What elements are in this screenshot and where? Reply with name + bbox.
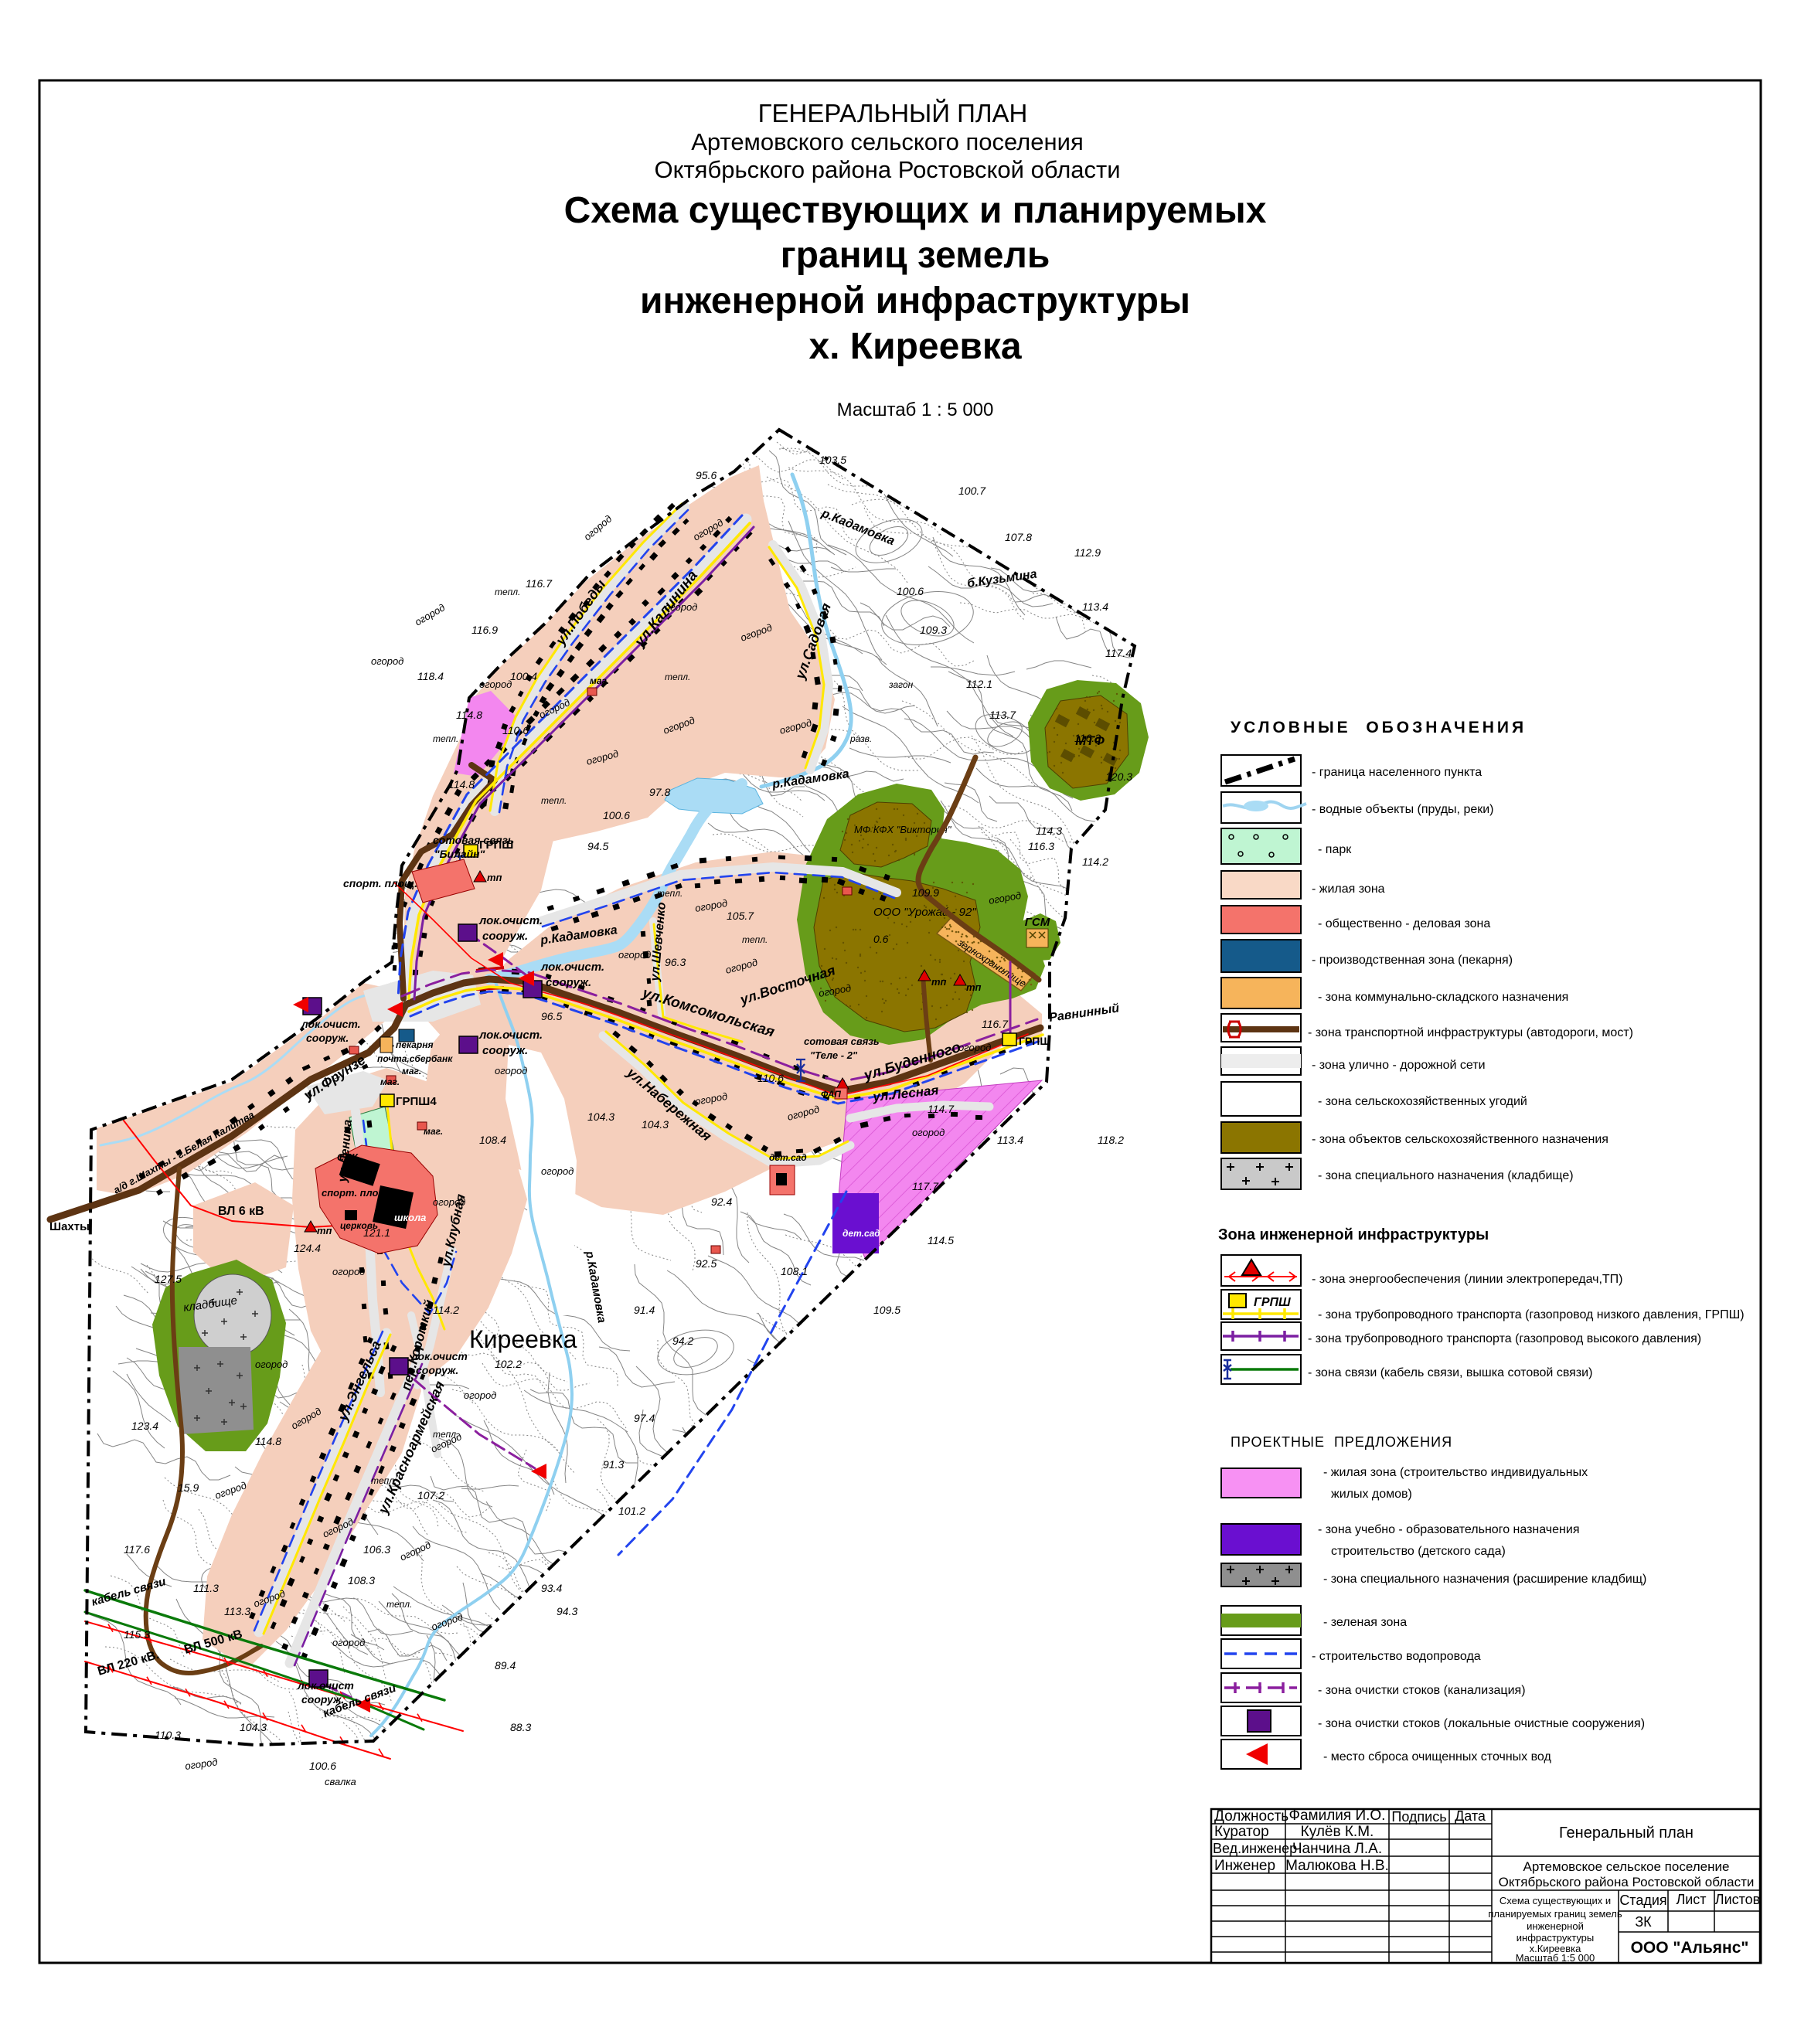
svg-text:- место сброса очищенных сточ: - место сброса очищенных сточных вод bbox=[1323, 1750, 1551, 1763]
svg-text:Схема существующих и планируем: Схема существующих и планируемых bbox=[564, 190, 1267, 231]
svg-text:Кулёв К.М.: Кулёв К.М. bbox=[1301, 1824, 1374, 1840]
svg-text:104.3: 104.3 bbox=[587, 1110, 614, 1123]
svg-text:огород: огород bbox=[912, 1127, 945, 1138]
svg-text:- зона очистки стоков (локальн: - зона очистки стоков (локальные очистны… bbox=[1318, 1717, 1645, 1730]
svg-text:105.7: 105.7 bbox=[727, 910, 754, 922]
svg-text:Куратор: Куратор bbox=[1214, 1824, 1269, 1840]
svg-text:100.6: 100.6 bbox=[309, 1760, 336, 1772]
svg-text:инфраструктуры: инфраструктуры bbox=[1517, 1932, 1595, 1944]
svg-text:91.4: 91.4 bbox=[634, 1304, 655, 1316]
svg-text:114.2: 114.2 bbox=[1082, 855, 1108, 868]
svg-text:ГРПШ: ГРПШ bbox=[1019, 1035, 1050, 1047]
svg-text:- строительство водопровода: - строительство водопровода bbox=[1312, 1650, 1481, 1663]
svg-text:Артемовское сельское поселение: Артемовское сельское поселение bbox=[1523, 1859, 1730, 1874]
svg-text:ГЕНЕРАЛЬНЫЙ ПЛАН: ГЕНЕРАЛЬНЫЙ ПЛАН bbox=[758, 99, 1028, 128]
svg-text:огород: огород bbox=[618, 949, 651, 961]
svg-text:тепл.: тепл. bbox=[371, 1475, 397, 1486]
svg-text:118.4: 118.4 bbox=[417, 670, 444, 682]
svg-text:огород: огород bbox=[665, 601, 697, 613]
svg-text:118.2: 118.2 bbox=[1098, 1134, 1124, 1146]
svg-text:разв.: разв. bbox=[849, 733, 872, 744]
svg-text:ФАП: ФАП bbox=[821, 1089, 841, 1100]
svg-text:спорт. площ.: спорт. площ. bbox=[343, 877, 417, 889]
svg-text:95.6: 95.6 bbox=[696, 469, 717, 481]
svg-text:тп: тп bbox=[487, 872, 502, 883]
svg-text:- зона специального назначения: - зона специального назначения (кладбище… bbox=[1318, 1169, 1574, 1182]
svg-text:111.3: 111.3 bbox=[193, 1582, 219, 1594]
svg-text:89.4: 89.4 bbox=[495, 1659, 516, 1672]
svg-text:огород: огород bbox=[371, 655, 403, 667]
svg-text:116.7: 116.7 bbox=[526, 577, 553, 590]
svg-text:113.7: 113.7 bbox=[989, 709, 1016, 721]
svg-text:102.2: 102.2 bbox=[495, 1358, 522, 1370]
svg-text:огород: огород bbox=[332, 1637, 365, 1648]
svg-text:сооруж.: сооруж. bbox=[482, 1044, 528, 1057]
svg-text:сооруж.: сооруж. bbox=[416, 1364, 458, 1376]
svg-text:огород: огород bbox=[332, 1266, 365, 1277]
svg-text:108.1: 108.1 bbox=[781, 1265, 808, 1277]
svg-text:Должность: Должность bbox=[1214, 1808, 1288, 1825]
svg-text:96.3: 96.3 bbox=[665, 956, 686, 968]
svg-text:112.9: 112.9 bbox=[1074, 546, 1101, 559]
svg-text:- производственная зона (пекар: - производственная зона (пекарня) bbox=[1312, 954, 1513, 967]
svg-text:114.5: 114.5 bbox=[928, 1234, 954, 1246]
svg-text:Киреевка: Киреевка bbox=[469, 1325, 577, 1353]
svg-text:107.8: 107.8 bbox=[1005, 531, 1032, 543]
svg-text:Схема существующих и: Схема существующих и bbox=[1500, 1895, 1611, 1906]
svg-text:свалка: свалка bbox=[325, 1776, 356, 1787]
svg-text:92.5: 92.5 bbox=[696, 1257, 717, 1270]
svg-text:109.9: 109.9 bbox=[912, 886, 939, 899]
svg-text:маг.: маг. bbox=[590, 675, 609, 686]
svg-text:100.7: 100.7 bbox=[958, 485, 986, 497]
svg-text:"Теле - 2": "Теле - 2" bbox=[810, 1049, 858, 1061]
svg-text:100.4: 100.4 bbox=[510, 670, 537, 682]
svg-text:124.4: 124.4 bbox=[294, 1242, 321, 1254]
svg-text:116.9: 116.9 bbox=[471, 624, 498, 636]
svg-text:- зона связи (кабель связи, в: - зона связи (кабель связи, вышка сотово… bbox=[1308, 1366, 1592, 1379]
svg-text:огород: огород bbox=[433, 1196, 465, 1208]
svg-text:123.4: 123.4 bbox=[131, 1420, 158, 1432]
svg-text:- зеленая зона: - зеленая зона bbox=[1323, 1616, 1407, 1629]
svg-text:тп: тп bbox=[317, 1225, 332, 1236]
svg-text:ГРПШ: ГРПШ bbox=[479, 838, 513, 852]
svg-text:Октябрьского района Ростовско: Октябрьского района Ростовской области bbox=[1499, 1875, 1755, 1889]
svg-text:тепл.: тепл. bbox=[495, 587, 520, 597]
svg-text:огород: огород bbox=[464, 1389, 496, 1401]
svg-text:Артемовского сельского поселен: Артемовского сельского поселения bbox=[691, 128, 1084, 155]
svg-text:93.4: 93.4 bbox=[541, 1582, 562, 1594]
svg-text:тепл.: тепл. bbox=[657, 888, 683, 899]
svg-text:- зона учебно - образовательно: - зона учебно - образовательного назначе… bbox=[1318, 1523, 1579, 1536]
svg-text:- зона сельскохозяйственных уг: - зона сельскохозяйственных угодий bbox=[1318, 1095, 1527, 1108]
svg-text:Зона инженерной инфраструктур: Зона инженерной инфраструктуры bbox=[1218, 1226, 1489, 1243]
svg-text:113.4: 113.4 bbox=[997, 1134, 1023, 1146]
svg-text:маг.: маг. bbox=[380, 1076, 400, 1087]
svg-text:114.8: 114.8 bbox=[456, 709, 482, 721]
svg-text:110.6: 110.6 bbox=[502, 724, 529, 736]
svg-text:маг.: маг. bbox=[402, 1066, 421, 1076]
svg-text:94.3: 94.3 bbox=[557, 1605, 577, 1617]
svg-text:Листов: Листов bbox=[1715, 1892, 1760, 1907]
svg-text:Шахты: Шахты bbox=[49, 1220, 90, 1233]
svg-text:127.5: 127.5 bbox=[155, 1273, 182, 1285]
svg-text:сооруж.: сооруж. bbox=[546, 976, 591, 989]
svg-text:Дата: Дата bbox=[1455, 1808, 1486, 1824]
svg-text:106.3: 106.3 bbox=[363, 1543, 390, 1556]
svg-text:ГРПШ4: ГРПШ4 bbox=[396, 1095, 437, 1108]
svg-text:91.3: 91.3 bbox=[603, 1458, 624, 1471]
svg-text:Октябрьского района Ростовской: Октябрьского района Ростовской области bbox=[654, 156, 1120, 183]
svg-text:117.6: 117.6 bbox=[124, 1543, 150, 1556]
svg-text:108.3: 108.3 bbox=[348, 1574, 375, 1587]
svg-text:тп: тп bbox=[966, 981, 982, 993]
svg-text:Масштаб 1 : 5 000: Масштаб 1 : 5 000 bbox=[837, 400, 994, 420]
svg-text:ООО "Урожай - 92": ООО "Урожай - 92" bbox=[873, 906, 976, 919]
svg-text:огород: огород bbox=[495, 1065, 527, 1076]
svg-text:92.4: 92.4 bbox=[711, 1195, 732, 1208]
svg-text:пекарня: пекарня bbox=[396, 1039, 434, 1050]
svg-text:115.3: 115.3 bbox=[124, 1628, 150, 1641]
svg-text:лок.очист: лок.очист bbox=[297, 1679, 354, 1692]
svg-text:УСЛОВНЫЕ ОБОЗНАЧЕНИЯ: УСЛОВНЫЕ ОБОЗНАЧЕНИЯ bbox=[1231, 719, 1527, 736]
svg-text:114.8: 114.8 bbox=[255, 1435, 281, 1447]
svg-text:88.3: 88.3 bbox=[510, 1721, 531, 1733]
svg-text:СДК: СДК bbox=[337, 1151, 359, 1163]
svg-text:- зона очистки стоков (канализ: - зона очистки стоков (канализация) bbox=[1318, 1684, 1526, 1697]
svg-text:лок.очист.: лок.очист. bbox=[540, 961, 604, 974]
svg-text:ЗК: ЗК bbox=[1635, 1914, 1652, 1930]
svg-text:- зона энергообеспечения (лини: - зона энергообеспечения (линии электроп… bbox=[1312, 1273, 1623, 1286]
svg-text:0.6: 0.6 bbox=[873, 933, 889, 945]
svg-text:- парк: - парк bbox=[1318, 843, 1352, 856]
svg-text:100.6: 100.6 bbox=[603, 809, 630, 821]
svg-text:огород: огород bbox=[541, 1165, 574, 1177]
svg-text:лок.очист.: лок.очист. bbox=[478, 914, 543, 927]
svg-text:94.5: 94.5 bbox=[587, 840, 608, 852]
svg-text:108.4: 108.4 bbox=[479, 1134, 506, 1146]
svg-text:- зона трубопроводного транспо: - зона трубопроводного транспорта (газоп… bbox=[1308, 1332, 1701, 1345]
svg-text:спорт. площ.: спорт. площ. bbox=[322, 1187, 390, 1199]
svg-text:тепл.: тепл. bbox=[433, 733, 458, 744]
svg-text:96.5: 96.5 bbox=[541, 1010, 562, 1022]
svg-text:Чанчина Л.А.: Чанчина Л.А. bbox=[1292, 1841, 1382, 1857]
svg-text:- граница населенного пункта: - граница населенного пункта bbox=[1312, 766, 1482, 779]
svg-text:строительство (детского сада): строительство (детского сада) bbox=[1331, 1545, 1506, 1558]
svg-text:сотовая связь: сотовая связь bbox=[804, 1036, 880, 1047]
svg-text:дет.сад: дет.сад bbox=[843, 1228, 880, 1239]
svg-text:почта,сбербанк: почта,сбербанк bbox=[377, 1053, 453, 1064]
svg-text:жилых домов): жилых домов) bbox=[1331, 1488, 1412, 1501]
svg-text:- зона коммунально-складского: - зона коммунально-складского назначения bbox=[1318, 991, 1568, 1004]
svg-text:97.4: 97.4 bbox=[634, 1412, 655, 1424]
svg-text:112.1: 112.1 bbox=[966, 678, 992, 690]
svg-text:121.1: 121.1 bbox=[363, 1226, 390, 1239]
svg-text:сооруж.: сооруж. bbox=[482, 930, 528, 943]
svg-text:дет.сад: дет.сад bbox=[769, 1152, 807, 1163]
svg-text:117.4: 117.4 bbox=[1105, 647, 1132, 659]
svg-text:107.2: 107.2 bbox=[417, 1489, 444, 1502]
svg-text:сооруж.: сооруж. bbox=[306, 1032, 349, 1044]
svg-text:- зона улично - дорожной сети: - зона улично - дорожной сети bbox=[1312, 1059, 1486, 1072]
svg-text:школа: школа bbox=[394, 1212, 426, 1223]
svg-text:114.3: 114.3 bbox=[1036, 825, 1062, 837]
svg-text:Малюкова Н.В.: Малюкова Н.В. bbox=[1285, 1858, 1389, 1874]
svg-text:"Билайн": "Билайн" bbox=[434, 848, 485, 860]
svg-text:- общественно - деловая зона: - общественно - деловая зона bbox=[1318, 917, 1490, 930]
svg-text:- водные объекты (пруды, реки): - водные объекты (пруды, реки) bbox=[1312, 803, 1494, 816]
svg-text:тепл.: тепл. bbox=[742, 934, 768, 945]
svg-text:113.4: 113.4 bbox=[1082, 600, 1108, 613]
svg-text:инженерной инфраструктуры: инженерной инфраструктуры bbox=[640, 281, 1190, 321]
svg-text:Масштаб 1:5 000: Масштаб 1:5 000 bbox=[1516, 1952, 1595, 1964]
svg-text:границ земель: границ земель bbox=[781, 235, 1050, 276]
svg-text:114.7: 114.7 bbox=[928, 1103, 955, 1115]
svg-text:- зона специального назначения: - зона специального назначения (расширен… bbox=[1323, 1573, 1646, 1586]
svg-text:тп: тп bbox=[931, 976, 947, 988]
svg-text:Фамилия И.О.: Фамилия И.О. bbox=[1289, 1808, 1386, 1824]
svg-text:104.3: 104.3 bbox=[642, 1118, 669, 1131]
svg-text:Генеральный план: Генеральный план bbox=[1559, 1825, 1694, 1842]
svg-text:загон: загон bbox=[888, 679, 914, 690]
svg-text:Лист: Лист bbox=[1676, 1892, 1706, 1907]
svg-text:тепл.: тепл. bbox=[386, 1599, 412, 1610]
svg-text:- зона трубопроводного транспо: - зона трубопроводного транспорта (газоп… bbox=[1318, 1308, 1745, 1321]
svg-text:ГСМ: ГСМ bbox=[1025, 916, 1050, 929]
svg-text:113.3: 113.3 bbox=[224, 1605, 250, 1617]
svg-text:Подпись: Подпись bbox=[1391, 1809, 1446, 1825]
svg-text:ГРПШ: ГРПШ bbox=[1254, 1296, 1291, 1309]
svg-text:тепл.: тепл. bbox=[541, 795, 567, 806]
svg-text:Вед.инженер: Вед.инженер bbox=[1213, 1841, 1297, 1856]
svg-text:огород: огород bbox=[958, 1042, 991, 1053]
svg-text:94.2: 94.2 bbox=[672, 1335, 693, 1347]
svg-text:- жилая зона: - жилая зона bbox=[1312, 883, 1385, 896]
svg-text:101.2: 101.2 bbox=[618, 1505, 645, 1517]
svg-text:- зона транспортной инфраструк: - зона транспортной инфраструктуры (авто… bbox=[1308, 1026, 1633, 1039]
svg-text:тепл.: тепл. bbox=[665, 672, 690, 682]
svg-text:109.3: 109.3 bbox=[920, 624, 947, 636]
svg-text:104.3: 104.3 bbox=[240, 1721, 267, 1733]
svg-text:ВЛ 6 кВ: ВЛ 6 кВ bbox=[218, 1205, 264, 1218]
svg-text:- зона объектов сельскохозяйст: - зона объектов сельскохозяйственного на… bbox=[1312, 1133, 1608, 1146]
svg-text:инженерной: инженерной bbox=[1527, 1920, 1584, 1932]
svg-text:лок.очист.: лок.очист. bbox=[478, 1029, 543, 1042]
svg-text:116.7: 116.7 bbox=[982, 1018, 1009, 1030]
svg-text:лок.очист: лок.очист bbox=[410, 1350, 468, 1362]
svg-text:планируемых границ земель: планируемых границ земель bbox=[1488, 1908, 1622, 1920]
svg-text:116.3: 116.3 bbox=[1074, 732, 1101, 744]
svg-text:маг.: маг. bbox=[424, 1126, 443, 1137]
svg-text:тепл.: тепл. bbox=[433, 1429, 458, 1440]
svg-text:ООО "Альянс": ООО "Альянс" bbox=[1631, 1939, 1749, 1957]
svg-text:ПРОЕКТНЫЕ ПРЕДЛОЖЕНИЯ: ПРОЕКТНЫЕ ПРЕДЛОЖЕНИЯ bbox=[1231, 1434, 1452, 1450]
svg-text:110.6: 110.6 bbox=[757, 1072, 784, 1084]
svg-text:116.3: 116.3 bbox=[1028, 840, 1054, 852]
svg-text:114.2: 114.2 bbox=[433, 1304, 459, 1316]
svg-text:109.5: 109.5 bbox=[873, 1304, 900, 1316]
svg-text:х. Киреевка: х. Киреевка bbox=[808, 326, 1021, 367]
svg-text:- жилая зона (строительство и: - жилая зона (строительство индивидуальн… bbox=[1323, 1466, 1588, 1479]
svg-text:97.8: 97.8 bbox=[649, 786, 670, 798]
svg-text:Стадия: Стадия bbox=[1619, 1893, 1666, 1908]
svg-text:огород: огород bbox=[255, 1359, 288, 1370]
svg-text:Инженер: Инженер bbox=[1214, 1858, 1275, 1874]
svg-text:15.9: 15.9 bbox=[178, 1481, 199, 1494]
svg-text:100.6: 100.6 bbox=[897, 585, 924, 597]
